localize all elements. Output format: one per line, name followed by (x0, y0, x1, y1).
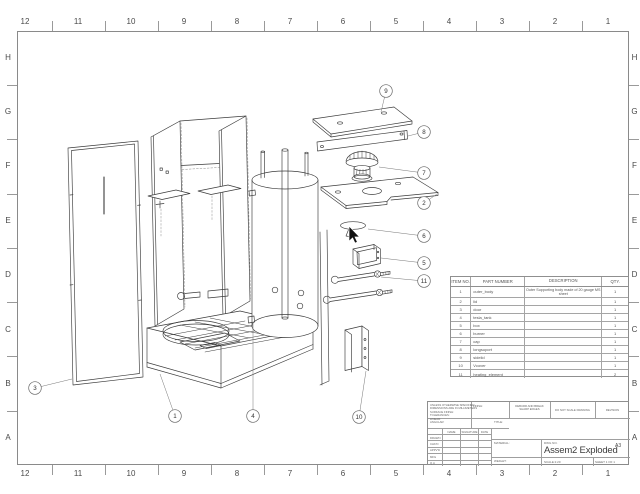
bom-cell-desc (525, 314, 602, 321)
sig-header-date: DATE (478, 430, 491, 434)
dwg-no-label: DWG NO. (544, 441, 558, 445)
part-cap (346, 151, 378, 181)
balloon-label: 6 (422, 233, 426, 240)
scale-label: SCALE:1:20 (544, 460, 561, 464)
sig-row-mfg: MFG (430, 455, 436, 459)
sig-header-signature: SIGNATURE (461, 430, 478, 434)
bom-cell-qty: 1 (602, 346, 628, 353)
bom-cell-qty: 1 (602, 330, 628, 337)
part-heating-elements (323, 271, 392, 304)
bom-cell-item: 8 (451, 346, 471, 353)
bom-header-item: ITEM NO. (451, 277, 471, 286)
bom-row: 1outer_bodyOuter Supporting body made of… (451, 287, 628, 299)
bom-cell-item: 7 (451, 338, 471, 345)
balloon-label: 9 (384, 88, 388, 95)
bom-cell-qty: 1 (602, 362, 628, 369)
bom-cell-part: Vcover (471, 362, 525, 369)
sig-row-qa: Q.A (430, 461, 435, 465)
sig-row-chkd: CHK'D (430, 442, 438, 446)
bom-cell-qty: 1 (602, 322, 628, 329)
sig-header-name: NAME (443, 430, 460, 434)
do-not-scale-label: DO NOT SCALE DRAWING (552, 408, 593, 412)
title-label: TITLE: (494, 420, 503, 424)
sig-row-drawn: DRAWN (430, 436, 440, 440)
bom-cell-desc: Outer Supporting body made of 20 gauge M… (525, 287, 602, 298)
bom-cell-qty: 1 (602, 298, 628, 305)
bom-row: 10Vcover1 (451, 362, 628, 370)
bom-cell-part: door (471, 306, 525, 313)
bom-cell-desc (525, 298, 602, 305)
bom-cell-item: 10 (451, 362, 471, 369)
bom-cell-part: lid (471, 298, 525, 305)
bom-cell-item: 3 (451, 306, 471, 313)
deburr-label: DEBURR AND BREAK SHARP EDGES (511, 405, 548, 412)
bom-cell-part: sidelid (471, 354, 525, 361)
bom-row: 5box1 (451, 322, 628, 330)
finish-label: FINISH: (473, 404, 483, 408)
title-block: UNLESS OTHERWISE SPECIFIED: DIMENSIONS A… (427, 401, 629, 465)
part-small-box (353, 245, 381, 269)
part-tesla-tank (248, 149, 318, 338)
bom-cell-part: heating_element (471, 370, 525, 378)
drawing-title: Assem2 Exploded (544, 445, 618, 456)
bom-rows: 1outer_bodyOuter Supporting body made of… (451, 287, 628, 379)
bom-header-row: ITEM NO. PART NUMBER DESCRIPTION QTY. (451, 277, 628, 287)
balloon-leader-line (368, 229, 424, 236)
balloon-label: 1 (173, 413, 177, 420)
sheet-size-label: A3 (615, 443, 621, 449)
bom-row: 7cap1 (451, 338, 628, 346)
drawing-sheet: 121211111010998877665544332211HHGGFFEEDD… (0, 0, 640, 494)
bom-cell-part: longsuport (471, 346, 525, 353)
bom-cell-desc (525, 330, 602, 337)
balloon-leader-line (160, 374, 175, 416)
bom-cell-qty: 1 (602, 287, 628, 298)
bom-header-part: PART NUMBER (471, 277, 525, 286)
bom-cell-part: tesla_tank (471, 314, 525, 321)
bom-cell-desc (525, 338, 602, 345)
bom-row: 11heating_element2 (451, 370, 628, 378)
bom-cell-desc (525, 370, 602, 378)
sheet-label: SHEET 1 OF 1 (595, 460, 615, 464)
bom-cell-part: box (471, 322, 525, 329)
revision-label: REVISION (597, 408, 628, 412)
balloon-label: 5 (422, 260, 426, 267)
bom-cell-desc (525, 362, 602, 369)
tolerance-line: ANGULAR: (430, 421, 477, 425)
bom-cell-desc (525, 322, 602, 329)
balloon-label: 2 (422, 200, 426, 207)
bom-cell-item: 9 (451, 354, 471, 361)
weight-label: WEIGHT: (494, 459, 507, 463)
balloon-label: 4 (251, 413, 255, 420)
bom-cell-part: cap (471, 338, 525, 345)
bom-cell-part: outer_body (471, 287, 525, 298)
bom-row: 4tesla_tank1 (451, 314, 628, 322)
bom-cell-desc (525, 346, 602, 353)
bom-row: 9sidelid1 (451, 354, 628, 362)
part-vcover (345, 326, 369, 372)
bom-cell-desc (525, 354, 602, 361)
bom-table: ITEM NO. PART NUMBER DESCRIPTION QTY. 1o… (450, 276, 629, 377)
bom-cell-qty: 1 (602, 354, 628, 361)
bom-cell-qty: 1 (602, 306, 628, 313)
bom-row: 3door1 (451, 306, 628, 314)
balloon-label: 7 (422, 170, 426, 177)
balloon-leader-line (379, 167, 424, 173)
bom-cell-item: 6 (451, 330, 471, 337)
bom-cell-desc (525, 306, 602, 313)
bom-cell-qty: 1 (602, 314, 628, 321)
balloon-label: 3 (33, 385, 37, 392)
bom-cell-part: burner (471, 330, 525, 337)
bom-header-desc: DESCRIPTION (525, 277, 602, 286)
bom-cell-item: 4 (451, 314, 471, 321)
material-label: MATERIAL: (494, 441, 510, 445)
bom-header-qty: QTY. (602, 277, 628, 286)
balloon-label: 10 (356, 414, 363, 421)
bom-cell-qty: 2 (602, 370, 628, 378)
bom-cell-qty: 1 (602, 338, 628, 345)
bom-row: 2lid1 (451, 298, 628, 306)
bom-row: 8longsuport1 (451, 346, 628, 354)
bom-cell-item: 11 (451, 370, 471, 378)
bom-cell-item: 2 (451, 298, 471, 305)
bom-row: 6burner1 (451, 330, 628, 338)
bom-cell-item: 1 (451, 287, 471, 298)
balloon-label: 8 (422, 129, 426, 136)
part-door (68, 141, 143, 385)
balloon-leader-line (359, 371, 366, 417)
balloon-label: 11 (421, 278, 428, 285)
bom-cell-item: 5 (451, 322, 471, 329)
sig-row-appvd: APPV'D (430, 448, 440, 452)
